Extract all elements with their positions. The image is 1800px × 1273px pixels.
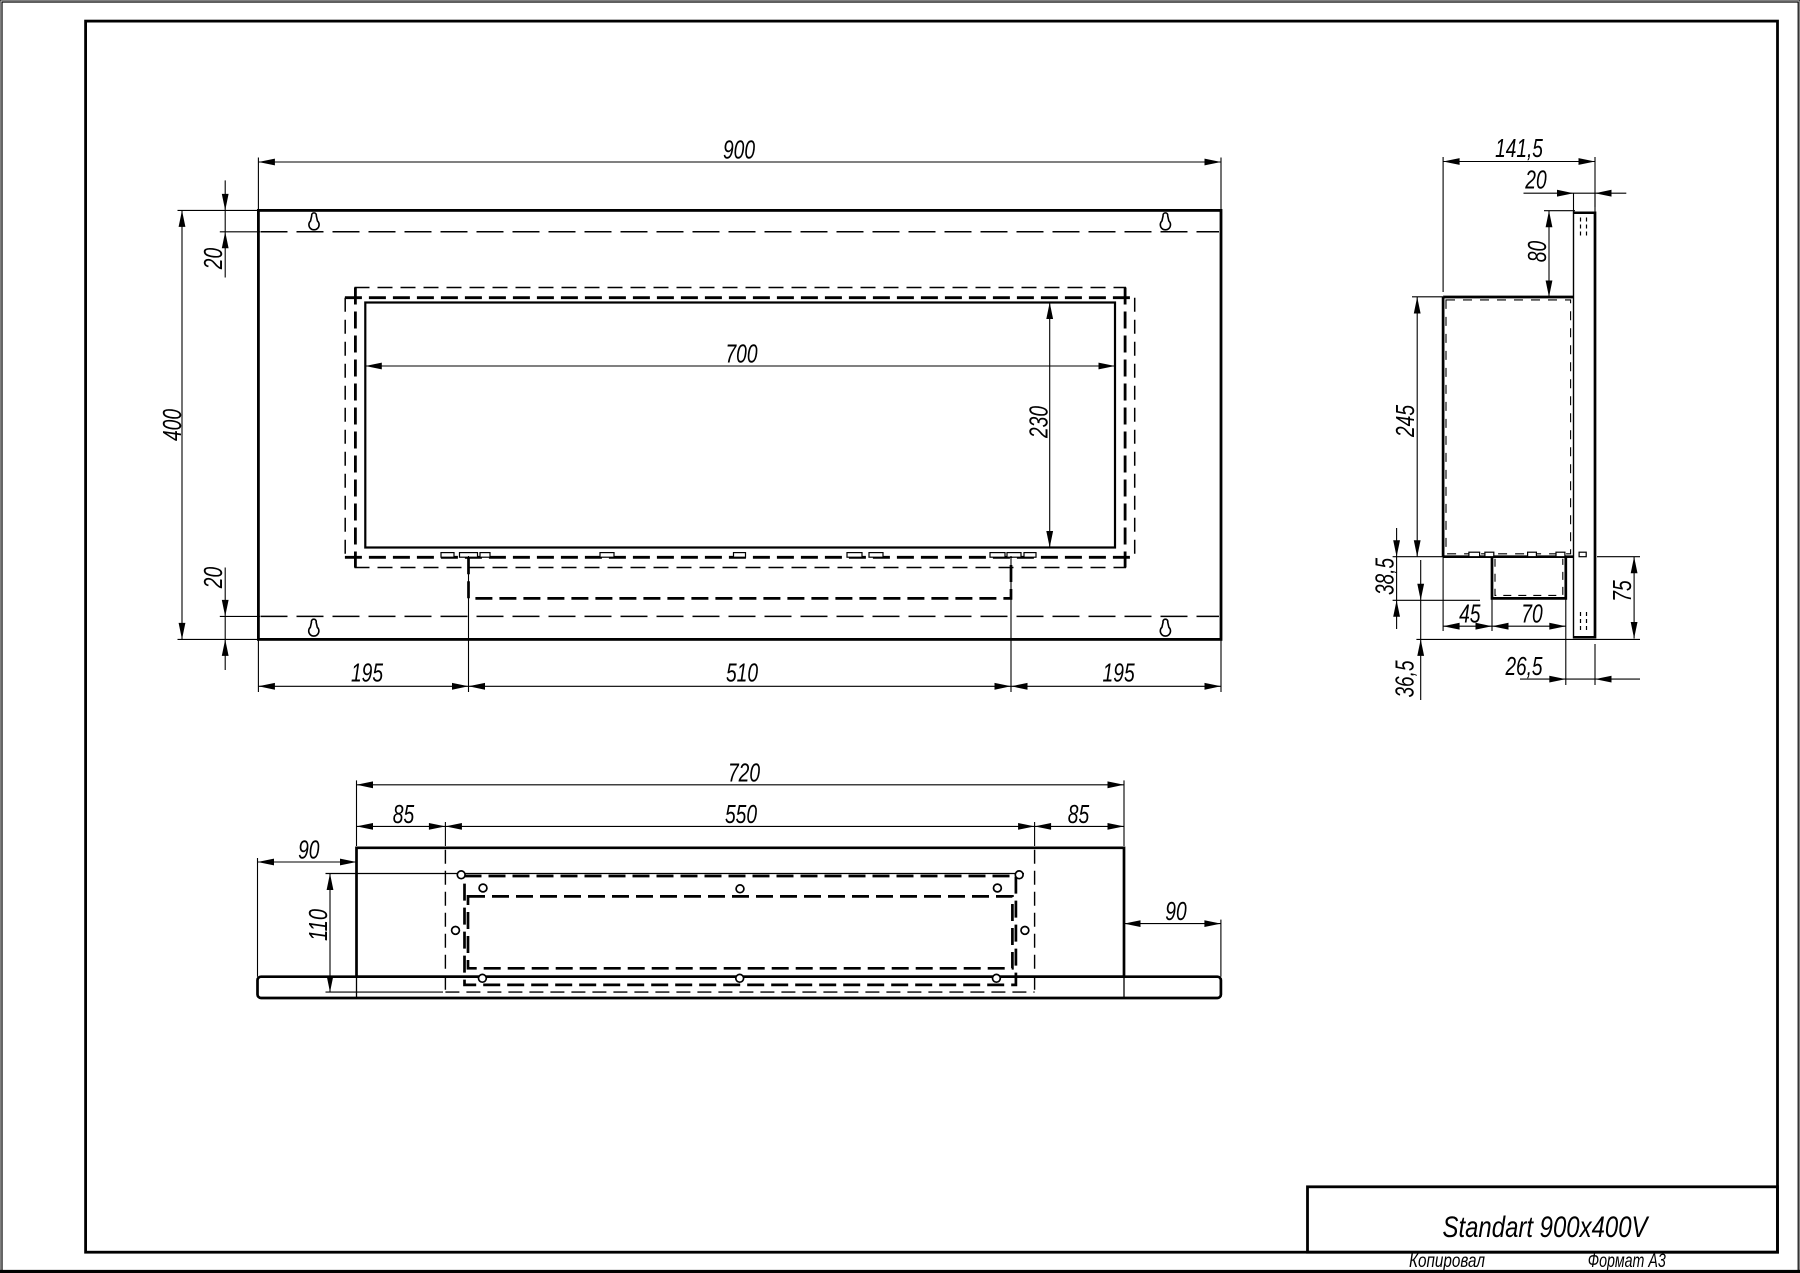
svg-text:20: 20 (1525, 167, 1547, 195)
svg-text:550: 550 (725, 801, 757, 829)
svg-text:195: 195 (351, 660, 384, 688)
svg-text:720: 720 (728, 759, 760, 787)
svg-text:85: 85 (393, 801, 415, 829)
svg-text:45: 45 (1459, 601, 1481, 629)
svg-text:245: 245 (1392, 404, 1420, 437)
svg-text:36,5: 36,5 (1392, 660, 1420, 698)
svg-text:Формат А3: Формат А3 (1588, 1251, 1666, 1272)
svg-text:70: 70 (1521, 601, 1542, 629)
svg-text:Standart 900x400V: Standart 900x400V (1443, 1211, 1650, 1244)
svg-text:85: 85 (1068, 801, 1090, 829)
svg-text:90: 90 (1165, 898, 1186, 926)
svg-text:20: 20 (200, 567, 228, 589)
svg-text:195: 195 (1103, 660, 1136, 688)
svg-text:230: 230 (1026, 406, 1054, 439)
svg-text:510: 510 (726, 660, 758, 688)
svg-text:20: 20 (200, 248, 228, 270)
svg-text:400: 400 (159, 409, 187, 441)
svg-text:90: 90 (298, 837, 319, 865)
svg-text:Копировал: Копировал (1409, 1251, 1485, 1272)
svg-text:38,5: 38,5 (1371, 557, 1399, 595)
svg-text:80: 80 (1524, 241, 1552, 262)
svg-text:700: 700 (725, 341, 757, 369)
svg-text:141,5: 141,5 (1495, 135, 1543, 163)
svg-text:110: 110 (305, 909, 333, 941)
svg-text:26,5: 26,5 (1505, 653, 1543, 681)
svg-text:900: 900 (723, 137, 755, 165)
svg-text:75: 75 (1609, 580, 1637, 602)
